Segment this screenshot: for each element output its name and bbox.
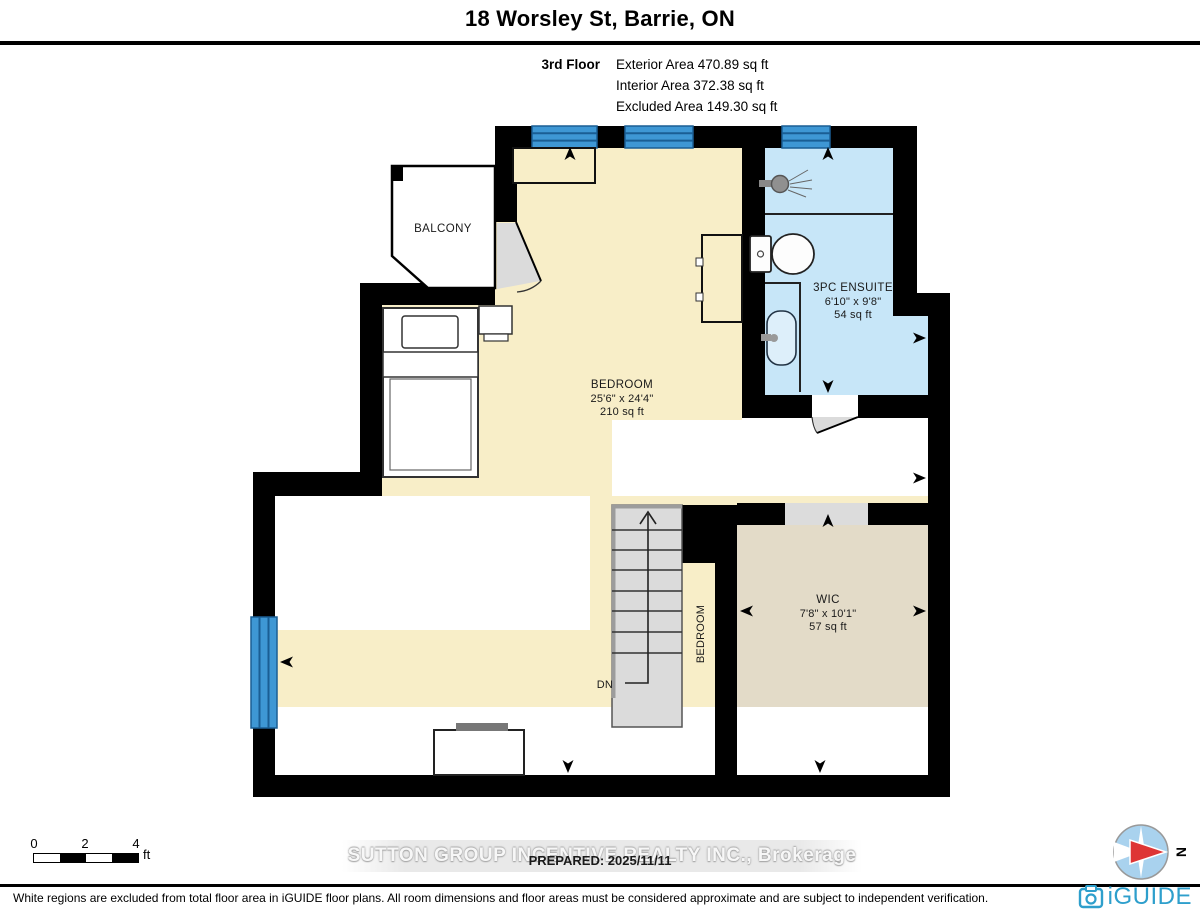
bed: [383, 308, 478, 477]
window-top-1: [532, 126, 597, 148]
toilet-icon: [750, 234, 814, 274]
iguide-logo: iGUIDE: [1078, 885, 1192, 909]
footer-divider: [0, 884, 1200, 887]
scale-unit: ft: [143, 847, 150, 862]
svg-text:6'10" x 9'8": 6'10" x 9'8": [825, 296, 882, 308]
balcony-corner-post: [392, 167, 403, 181]
svg-text:WIC: WIC: [816, 594, 840, 606]
dresser: [513, 148, 595, 183]
balcony-label: BALCONY: [414, 223, 472, 235]
iguide-camera-icon: [1078, 885, 1104, 909]
svg-text:25'6" x 24'4": 25'6" x 24'4": [591, 393, 654, 405]
footer-disclaimer: White regions are excluded from total fl…: [13, 891, 988, 905]
floorplan-page: { "header": { "title": "18 Worsley St, B…: [0, 0, 1200, 915]
bed-pillow: [402, 316, 458, 348]
bedroom-corridor-label: BEDROOM: [695, 605, 707, 663]
scale-tick-2: 2: [75, 836, 95, 851]
iguide-logo-text: iGUIDE: [1108, 885, 1192, 909]
prepared-date: PREPARED: 2025/11/11: [450, 853, 750, 868]
svg-text:BEDROOM: BEDROOM: [591, 379, 653, 391]
svg-text:3PC ENSUITE: 3PC ENSUITE: [813, 282, 893, 294]
svg-text:210 sq ft: 210 sq ft: [600, 406, 644, 418]
compass-north-label: N: [1173, 847, 1189, 857]
floorplan-drawing: BALCONY BEDROOM 25'6" x 24'4" 210 sq ft …: [0, 0, 1200, 915]
stairs-dn-label: DN: [597, 679, 613, 691]
svg-text:7'8" x 10'1": 7'8" x 10'1": [800, 608, 857, 620]
nightstand: [479, 306, 512, 341]
desk: [434, 723, 524, 775]
compass-icon: N: [1106, 819, 1196, 885]
window-top-2: [625, 126, 693, 148]
staircase: [612, 505, 682, 727]
scale-bar: [33, 853, 139, 863]
scale-tick-0: 0: [24, 836, 44, 851]
window-top-3: [782, 126, 830, 148]
arrow-right-bedroom-wall: [913, 473, 926, 484]
svg-text:57 sq ft: 57 sq ft: [809, 621, 847, 633]
ensuite-door: [812, 417, 858, 433]
svg-text:54 sq ft: 54 sq ft: [834, 309, 872, 321]
cabinet: [696, 235, 742, 322]
window-left: [251, 617, 277, 728]
